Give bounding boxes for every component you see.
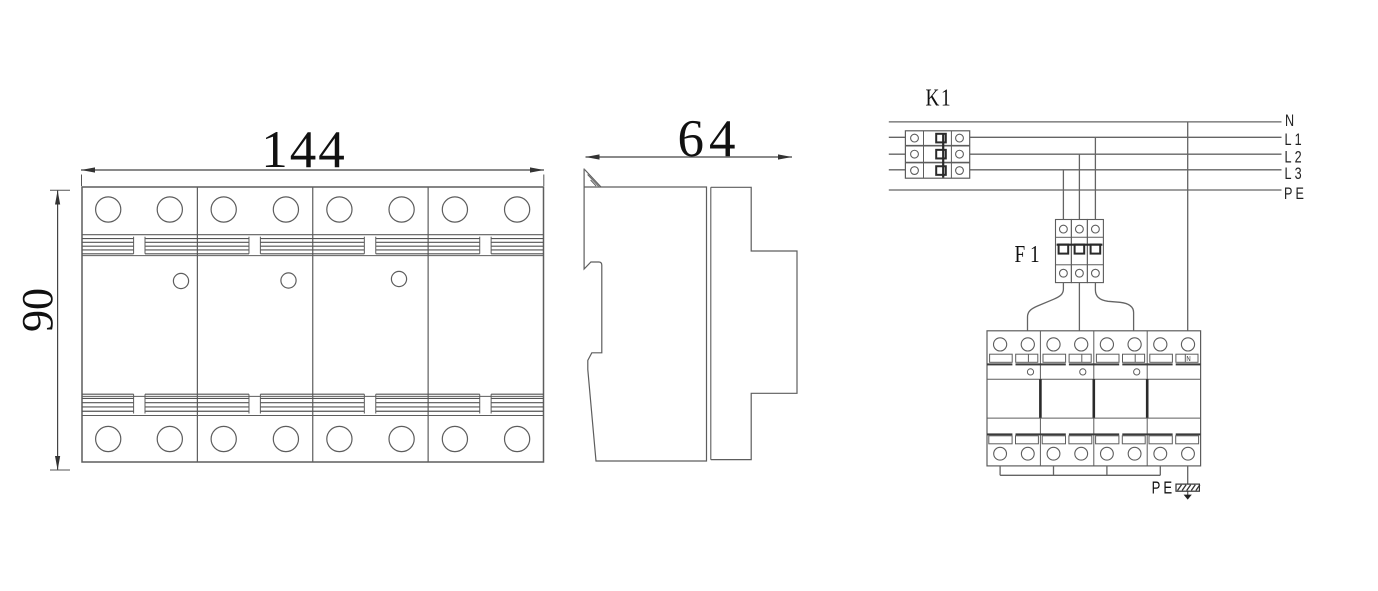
svg-text:K1: K1 [926, 84, 953, 111]
svg-text:90: 90 [13, 288, 62, 332]
svg-text:L3: L3 [1285, 166, 1305, 184]
svg-text:F1: F1 [1015, 241, 1045, 268]
svg-text:64: 64 [678, 110, 741, 168]
svg-text:PE: PE [1284, 185, 1307, 203]
svg-text:PE: PE [1152, 479, 1175, 498]
svg-text:144: 144 [261, 121, 347, 179]
svg-text:L1: L1 [1285, 132, 1305, 150]
svg-text:L2: L2 [1285, 149, 1305, 167]
svg-text:N: N [1285, 113, 1297, 131]
svg-text:N: N [1186, 355, 1190, 363]
